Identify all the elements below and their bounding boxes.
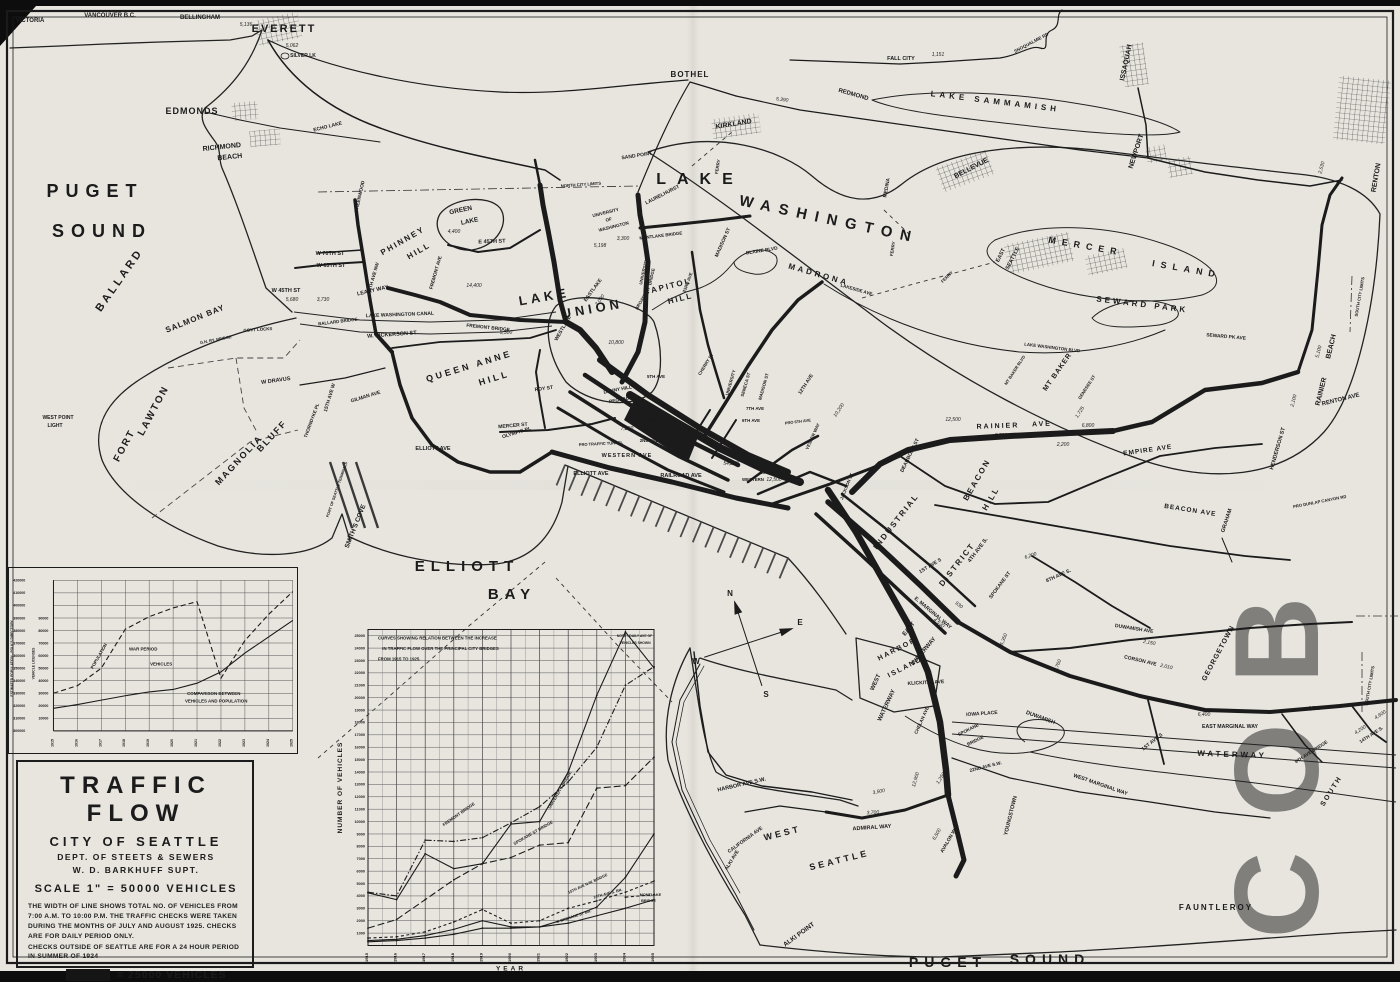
vehicle-tick: 80000 bbox=[38, 629, 48, 633]
population-tick: 420000 bbox=[13, 579, 25, 583]
map-label: ELLIOTT AVE bbox=[415, 446, 450, 452]
data-point bbox=[453, 928, 455, 930]
data-point bbox=[567, 842, 569, 844]
chart-annotation: COMPARISON BETWEEN bbox=[187, 691, 240, 696]
map-label: 6,800 bbox=[1082, 423, 1095, 429]
population-chart: 3000003100003200003300003400003500003600… bbox=[9, 568, 297, 753]
y-tick: 7000 bbox=[357, 857, 365, 861]
map-label: BOTHEL bbox=[671, 70, 710, 79]
data-point bbox=[396, 895, 398, 897]
map-label: 14,400 bbox=[466, 283, 482, 289]
map-label: E bbox=[797, 618, 803, 627]
map-subtitle: CITY OF SEATTLE bbox=[28, 834, 244, 849]
y-tick: 19000 bbox=[354, 708, 365, 712]
map-label: 2,200 bbox=[1056, 442, 1070, 448]
vehicle-tick: 20000 bbox=[38, 704, 48, 708]
map-label: EAST MARGINAL WAY bbox=[1202, 724, 1258, 730]
map-label: SOUND bbox=[52, 221, 152, 241]
map-label: 2ND AVE bbox=[640, 438, 659, 443]
data-point bbox=[482, 863, 484, 865]
map-label: S bbox=[763, 690, 769, 699]
year-tick: 1919 bbox=[146, 739, 150, 747]
year-tick: 1924 bbox=[266, 739, 270, 747]
year-tick: 1920 bbox=[170, 739, 174, 747]
method-note-2: CHECKS OUTSIDE OF SEATTLE ARE FOR A 24 H… bbox=[28, 943, 244, 963]
map-label: 10,800 bbox=[608, 340, 624, 346]
map-label: E 45TH ST bbox=[478, 239, 506, 246]
map-label: 3,730 bbox=[317, 297, 330, 303]
map-label: 4,500 bbox=[1308, 706, 1321, 712]
data-point bbox=[396, 899, 398, 901]
vehicle-tick: 40000 bbox=[38, 679, 48, 683]
year-tick: 1923 bbox=[593, 952, 598, 962]
y-tick: 12000 bbox=[354, 795, 365, 799]
chart-annotation: FREMONT BRIDGE bbox=[442, 801, 476, 827]
population-tick: 340000 bbox=[13, 679, 25, 683]
chart-annotation: CURVES SHOWING RELATION BETWEEN THE INCR… bbox=[378, 635, 497, 640]
map-label: 54,200 bbox=[723, 461, 739, 467]
year-tick: 1921 bbox=[194, 739, 198, 747]
population-tick: 400000 bbox=[13, 604, 25, 608]
population-tick: 410000 bbox=[13, 591, 25, 595]
data-point bbox=[482, 837, 484, 839]
year-tick: 1917 bbox=[98, 739, 102, 747]
data-point bbox=[453, 841, 455, 843]
x-axis-label: YEAR bbox=[496, 966, 526, 973]
map-label: ELLIOTT AVE bbox=[573, 471, 608, 477]
data-point bbox=[539, 806, 541, 808]
data-point bbox=[539, 926, 541, 928]
population-tick: 310000 bbox=[13, 717, 25, 721]
map-label: 3,300 bbox=[617, 236, 630, 242]
map-label: BAY bbox=[488, 586, 536, 603]
year-tick: 1925 bbox=[650, 952, 655, 962]
map-label: 4,400 bbox=[448, 229, 461, 235]
map-label: 4TH AVE bbox=[641, 417, 659, 422]
line-width-legend: = 25000 VEHICLES bbox=[66, 969, 244, 981]
data-point bbox=[625, 891, 627, 893]
y-tick: 8000 bbox=[357, 845, 365, 849]
data-point bbox=[482, 920, 484, 922]
map-label: RAINIER bbox=[976, 422, 1019, 430]
year-tick: 1925 bbox=[290, 739, 294, 747]
y-tick: 15000 bbox=[354, 758, 365, 762]
bridge-chart-box: 1000200030004000500060007000800090001000… bbox=[334, 621, 664, 974]
map-label: PUGET bbox=[46, 181, 143, 201]
map-label: EVERETT bbox=[252, 23, 317, 35]
data-point bbox=[424, 935, 426, 937]
chart-annotation: MONTLAKE bbox=[640, 893, 662, 897]
map-label: ELLIOTT bbox=[415, 558, 520, 575]
vehicle-tick: 60000 bbox=[38, 654, 48, 658]
y-tick: 6000 bbox=[357, 869, 365, 873]
data-point bbox=[567, 922, 569, 924]
y-tick: 18000 bbox=[354, 721, 365, 725]
map-label: 5,300 bbox=[500, 330, 513, 336]
data-point bbox=[424, 853, 426, 855]
map-label: 5,136 bbox=[240, 22, 253, 28]
population-tick: 380000 bbox=[13, 629, 25, 633]
y-tick: 4000 bbox=[357, 894, 365, 898]
map-sheet: BOC bbox=[0, 0, 1400, 982]
y-tick: 24000 bbox=[354, 646, 365, 650]
vehicle-tick: 50000 bbox=[38, 666, 48, 670]
data-point bbox=[653, 667, 655, 669]
data-point bbox=[424, 931, 426, 933]
dept-line: DEPT. OF STEETS & SEWERS bbox=[28, 852, 244, 862]
year-tick: 1924 bbox=[621, 952, 626, 962]
chart-annotation: NOTE - DAILY AVE OF bbox=[617, 634, 652, 638]
map-label: 3RD AVE bbox=[644, 427, 663, 432]
population-chart-box: 3000003100003200003300003400003500003600… bbox=[8, 567, 298, 754]
y-tick: 2000 bbox=[357, 919, 365, 923]
legend-line-swatch bbox=[66, 969, 110, 981]
data-point bbox=[596, 906, 598, 908]
map-label: RAILROAD AVE bbox=[660, 473, 702, 479]
y-tick: 14000 bbox=[354, 770, 365, 774]
population-tick: 300000 bbox=[13, 729, 25, 733]
population-tick: 350000 bbox=[13, 666, 25, 670]
map-label: FALL CITY bbox=[887, 56, 915, 62]
y-tick: 5000 bbox=[357, 882, 365, 886]
scale-line: SCALE 1" = 50000 VEHICLES bbox=[28, 883, 244, 895]
y-tick: 10000 bbox=[354, 820, 365, 824]
watermark-letter: B bbox=[1210, 597, 1344, 684]
data-point bbox=[482, 927, 484, 929]
data-point bbox=[453, 933, 455, 935]
data-point bbox=[510, 927, 512, 929]
population-tick: 330000 bbox=[13, 692, 25, 696]
map-label: FAUNTLEROY bbox=[1179, 903, 1253, 912]
chart-annotation: IN TRAFFIC FLOW OVER THE PRINCIPAL CITY … bbox=[382, 646, 499, 651]
y-tick: 21000 bbox=[354, 684, 365, 688]
map-label: 5,198 bbox=[594, 243, 607, 249]
map-label: N bbox=[727, 589, 733, 598]
map-label: VICTORIA bbox=[16, 18, 45, 24]
chart-annotation: BRIDGE bbox=[641, 899, 656, 903]
map-title: TRAFFIC FLOW bbox=[28, 772, 244, 828]
legend-value: = 25000 VEHICLES bbox=[117, 969, 227, 981]
map-label: LAKE bbox=[656, 171, 744, 188]
year-tick: 1921 bbox=[536, 952, 541, 962]
vehicle-tick: 70000 bbox=[38, 641, 48, 645]
year-tick: 1915 bbox=[364, 952, 369, 962]
y-tick: 17000 bbox=[354, 733, 365, 737]
map-label: WESTERN bbox=[742, 477, 764, 482]
map-label: W bbox=[692, 657, 700, 666]
chart-annotation: POPULATION bbox=[90, 642, 109, 669]
y-axis-label-inner: VEHICLE LICENSES bbox=[31, 647, 35, 679]
map-label: WEST POINT bbox=[42, 415, 73, 421]
year-tick: 1918 bbox=[122, 739, 126, 747]
chart-annotation: VEHICLES bbox=[150, 662, 172, 667]
y-axis-label: NUMBER OF VEHICLES bbox=[337, 742, 344, 834]
title-block: TRAFFIC FLOW CITY OF SEATTLE DEPT. OF ST… bbox=[16, 760, 254, 968]
population-tick: 360000 bbox=[13, 654, 25, 658]
map-label: 1,151 bbox=[932, 52, 945, 58]
data-point bbox=[596, 746, 598, 748]
year-tick: 1918 bbox=[450, 952, 455, 962]
bridge-chart: 1000200030004000500060007000800090001000… bbox=[334, 621, 664, 974]
data-point bbox=[367, 941, 369, 943]
data-point bbox=[625, 876, 627, 878]
vehicle-tick: 30000 bbox=[38, 692, 48, 696]
map-label: EDMONDS bbox=[165, 106, 218, 116]
map-label: 5,680 bbox=[286, 297, 299, 303]
watermark: BOC bbox=[1210, 597, 1344, 939]
chart-annotation: WAR PERIOD bbox=[129, 647, 157, 652]
data-point bbox=[596, 787, 598, 789]
y-tick: 16000 bbox=[354, 746, 365, 750]
data-point bbox=[367, 937, 369, 939]
map-label: 12,500 bbox=[945, 417, 961, 423]
data-point bbox=[510, 823, 512, 825]
y-tick: 11000 bbox=[355, 807, 365, 811]
data-point bbox=[367, 927, 369, 929]
map-label: W 70TH ST bbox=[316, 251, 345, 257]
population-tick: 320000 bbox=[13, 704, 25, 708]
map-label: VANCOUVER B.C. bbox=[84, 13, 136, 19]
map-label: WESTERN AVE bbox=[602, 453, 653, 459]
data-point bbox=[625, 631, 627, 633]
data-point bbox=[453, 879, 455, 881]
data-point bbox=[625, 785, 627, 787]
data-point bbox=[453, 921, 455, 923]
data-point bbox=[596, 915, 598, 917]
data-point bbox=[367, 892, 369, 894]
population-tick: 390000 bbox=[13, 616, 25, 620]
map-label: 6TH AVE bbox=[742, 418, 760, 423]
data-point bbox=[453, 868, 455, 870]
vehicle-tick: 90000 bbox=[38, 616, 48, 620]
map-label: 7,260 bbox=[621, 426, 634, 432]
chart-annotation: 14TH AVE S. BR. bbox=[593, 888, 623, 900]
data-point bbox=[539, 821, 541, 823]
supt-line: W. D. BARKHUFF SUPT. bbox=[28, 865, 244, 875]
data-point bbox=[653, 880, 655, 882]
chart-annotation: VEHICLES SHOWN bbox=[620, 641, 651, 645]
year-tick: 1919 bbox=[478, 952, 483, 962]
y-tick: 23000 bbox=[354, 659, 365, 663]
year-tick: 1917 bbox=[421, 952, 426, 962]
data-point bbox=[596, 900, 598, 902]
chart-annotation: UNIVERSITY BRIDGE bbox=[547, 770, 573, 809]
year-tick: 1915 bbox=[50, 739, 54, 747]
map-label: W 65TH ST bbox=[317, 263, 346, 269]
map-label: 3,700 bbox=[866, 810, 879, 817]
watermark-letter: C bbox=[1210, 852, 1344, 939]
data-point bbox=[424, 899, 426, 901]
map-label: 8,500 bbox=[995, 433, 1008, 439]
data-point bbox=[539, 844, 541, 846]
map-label: 5TH AVE bbox=[647, 374, 665, 379]
map-label: W 45TH ST bbox=[272, 288, 301, 294]
data-point bbox=[625, 907, 627, 909]
map-label: 1ST AVE bbox=[760, 470, 778, 475]
map-label: SOUND bbox=[1010, 951, 1091, 967]
method-note: THE WIDTH OF LINE SHOWS TOTAL NO. OF VEH… bbox=[28, 902, 244, 942]
year-tick: 1916 bbox=[393, 952, 398, 962]
data-point bbox=[424, 839, 426, 841]
data-point bbox=[653, 833, 655, 835]
y-tick: 22000 bbox=[354, 671, 365, 675]
data-point bbox=[596, 694, 598, 696]
year-tick: 1923 bbox=[242, 739, 246, 747]
y-tick: 9000 bbox=[357, 832, 365, 836]
population-tick: 370000 bbox=[13, 641, 25, 645]
y-tick: 25000 bbox=[354, 634, 365, 638]
map-label: 5,062 bbox=[286, 43, 299, 49]
data-point bbox=[510, 857, 512, 859]
map-label: AVE bbox=[1032, 421, 1052, 429]
data-point bbox=[482, 909, 484, 911]
chart-annotation: VEHICLES AND POPULATION bbox=[185, 699, 247, 704]
data-point bbox=[396, 919, 398, 921]
map-label: PUGET bbox=[909, 954, 987, 970]
data-point bbox=[396, 936, 398, 938]
data-point bbox=[567, 907, 569, 909]
data-point bbox=[424, 937, 426, 939]
y-axis-label-left: ESTIMATED POPULATION - POLK'S DIRECTORY bbox=[10, 620, 14, 697]
year-tick: 1916 bbox=[74, 739, 78, 747]
year-tick: 1920 bbox=[507, 952, 512, 962]
data-point bbox=[539, 920, 541, 922]
vehicle-tick: 10000 bbox=[38, 717, 48, 721]
y-tick: 1000 bbox=[357, 931, 365, 935]
map-label: SILVER LK bbox=[290, 53, 316, 59]
data-point bbox=[625, 896, 627, 898]
data-point bbox=[653, 756, 655, 758]
map-label: LIGHT bbox=[48, 423, 63, 429]
map-label: BELLINGHAM bbox=[180, 15, 220, 21]
map-label: 6,400 bbox=[1198, 712, 1211, 718]
data-point bbox=[510, 922, 512, 924]
y-tick: 20000 bbox=[354, 696, 365, 700]
map-label: 7TH AVE bbox=[746, 406, 764, 411]
map-label: 12,500 bbox=[766, 477, 782, 483]
y-tick: 3000 bbox=[357, 907, 365, 911]
year-tick: 1922 bbox=[564, 952, 569, 962]
data-point bbox=[625, 684, 627, 686]
year-tick: 1922 bbox=[218, 739, 222, 747]
chart-annotation: FROM 1915 TO 1925. bbox=[378, 656, 420, 661]
data-point bbox=[396, 940, 398, 942]
y-tick: 13000 bbox=[354, 783, 365, 787]
